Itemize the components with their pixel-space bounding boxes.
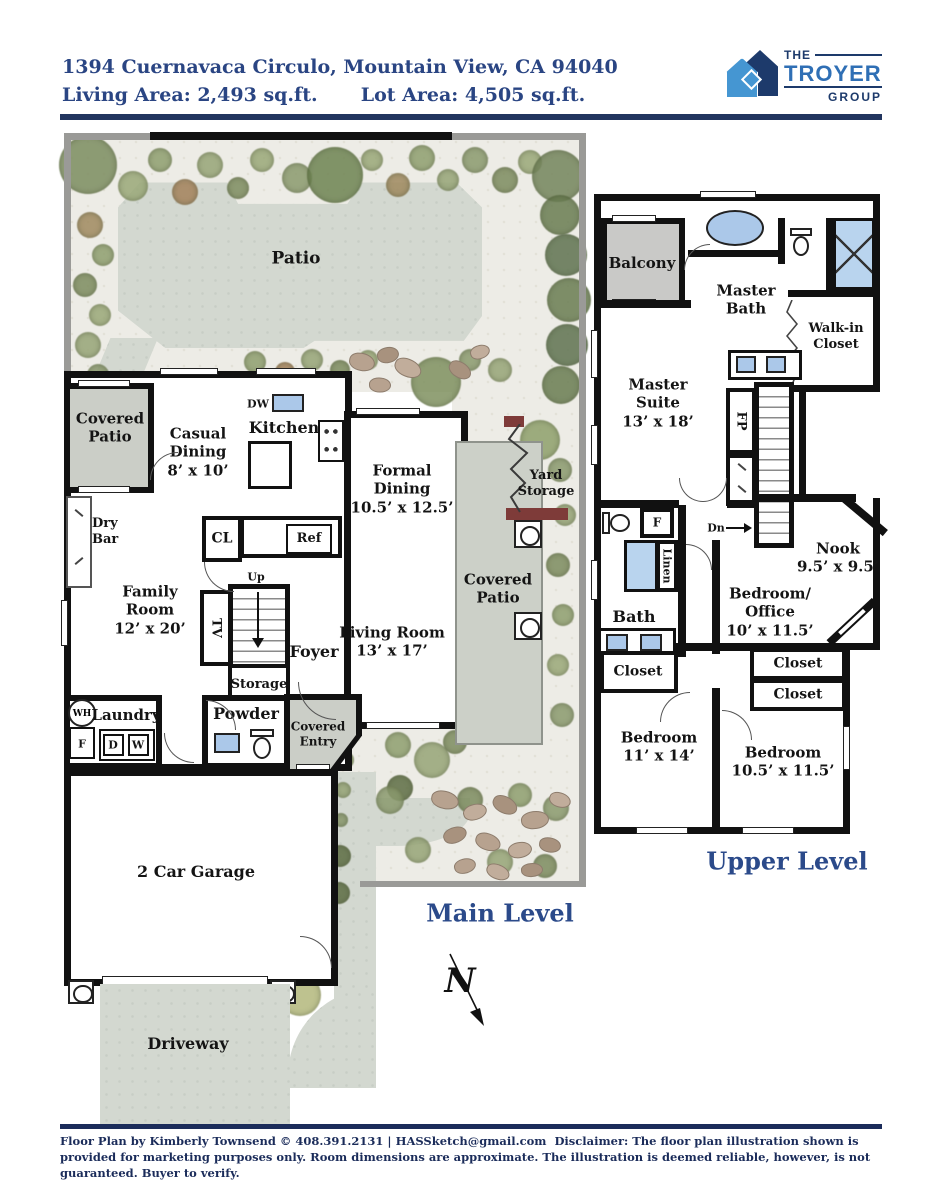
driveway-label: Driveway (147, 1034, 228, 1054)
living-room-label: Living Room 13’ x 17’ (327, 624, 457, 661)
dn-arrow-head (744, 523, 752, 533)
freezer-label: F (78, 737, 86, 750)
wall (778, 218, 785, 264)
upper-level-title: Upper Level (706, 847, 867, 876)
balcony-label: Balcony (609, 254, 676, 272)
bedroom-se-label: Bedroom 10.5’ x 11.5’ (728, 744, 838, 781)
toilet-bowl (610, 514, 630, 532)
wall (712, 540, 720, 654)
wall (788, 290, 878, 297)
window (160, 368, 218, 375)
window (256, 368, 316, 375)
patio-post-1 (514, 520, 542, 548)
covered-patio-nw-label: Covered Patio (75, 410, 145, 447)
living-area-text: Living Area: 2,493 sq.ft. (62, 84, 318, 106)
main-level-title: Main Level (426, 899, 574, 928)
area-line: Living Area: 2,493 sq.ft. Lot Area: 4,50… (62, 84, 585, 106)
fence-right (579, 133, 586, 886)
wall (678, 505, 686, 657)
window (356, 408, 420, 415)
fence-top-wall (150, 132, 452, 140)
window (61, 600, 68, 646)
house-body-east (344, 411, 468, 729)
cl-label: CL (212, 530, 233, 547)
stove (318, 420, 344, 462)
dryer-label: D (108, 738, 118, 751)
tv-label: TV (209, 618, 224, 638)
toilet (790, 228, 812, 236)
closet-east-2-label: Closet (773, 686, 822, 703)
window (78, 486, 130, 493)
footer-divider (60, 1124, 882, 1129)
wall (712, 688, 720, 834)
garage-post-left (68, 980, 94, 1004)
window (78, 380, 130, 387)
dw-label: DW (247, 397, 269, 410)
toilet-bowl (793, 236, 809, 256)
svg-text:N: N (443, 961, 477, 1001)
window (843, 726, 850, 770)
window (700, 191, 756, 198)
patio-label: Patio (272, 249, 321, 270)
window (636, 827, 688, 834)
wall (788, 385, 880, 392)
family-room-label: Family Room 12’ x 20’ (108, 583, 192, 638)
master-suite-label: Master Suite 13’ x 18’ (619, 376, 697, 431)
logo-the: THE (784, 48, 811, 62)
window (591, 425, 598, 465)
laundry-label: Laundry (91, 706, 160, 724)
bedroom-office-label: Bedroom/ Office 10’ x 11.5’ (725, 585, 815, 640)
logo-group: GROUP (784, 86, 882, 104)
fp-label: FP (734, 411, 749, 430)
north-compass: N (436, 950, 496, 1036)
covered-patio-e-label: Covered Patio (463, 571, 533, 608)
powder-sink (214, 733, 240, 753)
bathtub (706, 210, 764, 246)
closet-east-1-label: Closet (773, 655, 822, 672)
wall (601, 500, 679, 508)
toilet (602, 512, 610, 534)
covered-entry-label: Covered Entry (290, 719, 346, 748)
stairs-arrow-line (257, 592, 259, 640)
kitchen-island (248, 441, 292, 489)
dry-bar-label: Dry Bar (92, 516, 144, 548)
kitchen-sink (272, 394, 304, 412)
fence-left (64, 133, 71, 391)
lot-area-text: Lot Area: 4,505 sq.ft. (361, 84, 585, 106)
window (742, 827, 794, 834)
window (591, 560, 598, 600)
patio-post-2 (514, 612, 542, 640)
logo-troyer: TROYER (784, 62, 882, 86)
dry-bar-cabinet (66, 496, 92, 588)
formal-dining-label: Formal Dining 10.5’ x 12.5’ (347, 462, 457, 517)
logo-rule-top (815, 54, 882, 56)
footer-text: Floor Plan by Kimberly Townsend © 408.39… (60, 1133, 884, 1181)
toilet-bowl (253, 737, 271, 759)
bedroom-sw-label: Bedroom 11’ x 14’ (614, 729, 704, 766)
washer-label: W (132, 738, 144, 751)
bath-label: Bath (613, 607, 656, 627)
window (612, 215, 656, 222)
closet-west-label: Closet (613, 663, 662, 680)
window (366, 722, 440, 729)
garage-label: 2 Car Garage (137, 862, 255, 882)
sink (736, 356, 756, 373)
shower (833, 218, 875, 290)
stairs-up (228, 584, 290, 676)
wall (826, 218, 833, 290)
fence-bottom (360, 881, 586, 887)
footer-credit: Floor Plan by Kimberly Townsend © 408.39… (60, 1134, 546, 1148)
floor-plan-page: 1394 Cuernavaca Circulo, Mountain View, … (0, 0, 938, 1200)
foyer-label: Foyer (289, 642, 338, 662)
stairs-arrow-head (252, 638, 264, 648)
up-label: Up (247, 570, 264, 583)
upper-exterior-notch (799, 392, 880, 498)
address-line: 1394 Cuernavaca Circulo, Mountain View, … (62, 56, 618, 78)
front-path-curve (288, 988, 376, 1088)
wall (601, 300, 691, 308)
nook-label: Nook 9.5’ x 9.5’ (788, 540, 888, 577)
tub-shower (624, 540, 658, 592)
master-bath-label: Master Bath (716, 282, 776, 319)
walk-in-closet-label: Walk-in Closet (801, 321, 871, 353)
driveway-slab (100, 984, 290, 1124)
dn-label: Dn (707, 521, 725, 534)
window (591, 330, 598, 378)
sink (766, 356, 786, 373)
troyer-group-logo: THE TROYER GROUP (722, 46, 884, 112)
upper-f-label: F (653, 516, 662, 531)
storage-label: Storage (231, 677, 288, 693)
kitchen-label: Kitchen (249, 418, 320, 438)
toilet (250, 729, 274, 737)
yard-storage-label: Yard Storage (517, 468, 575, 500)
ref-label: Ref (297, 531, 322, 547)
header-divider (60, 114, 882, 120)
stairs-down (754, 382, 794, 548)
logo-text: THE TROYER GROUP (784, 48, 882, 104)
dn-arrow-line (726, 527, 744, 529)
sink (606, 634, 628, 651)
linen-label: Linen (661, 549, 674, 584)
sink (640, 634, 662, 651)
